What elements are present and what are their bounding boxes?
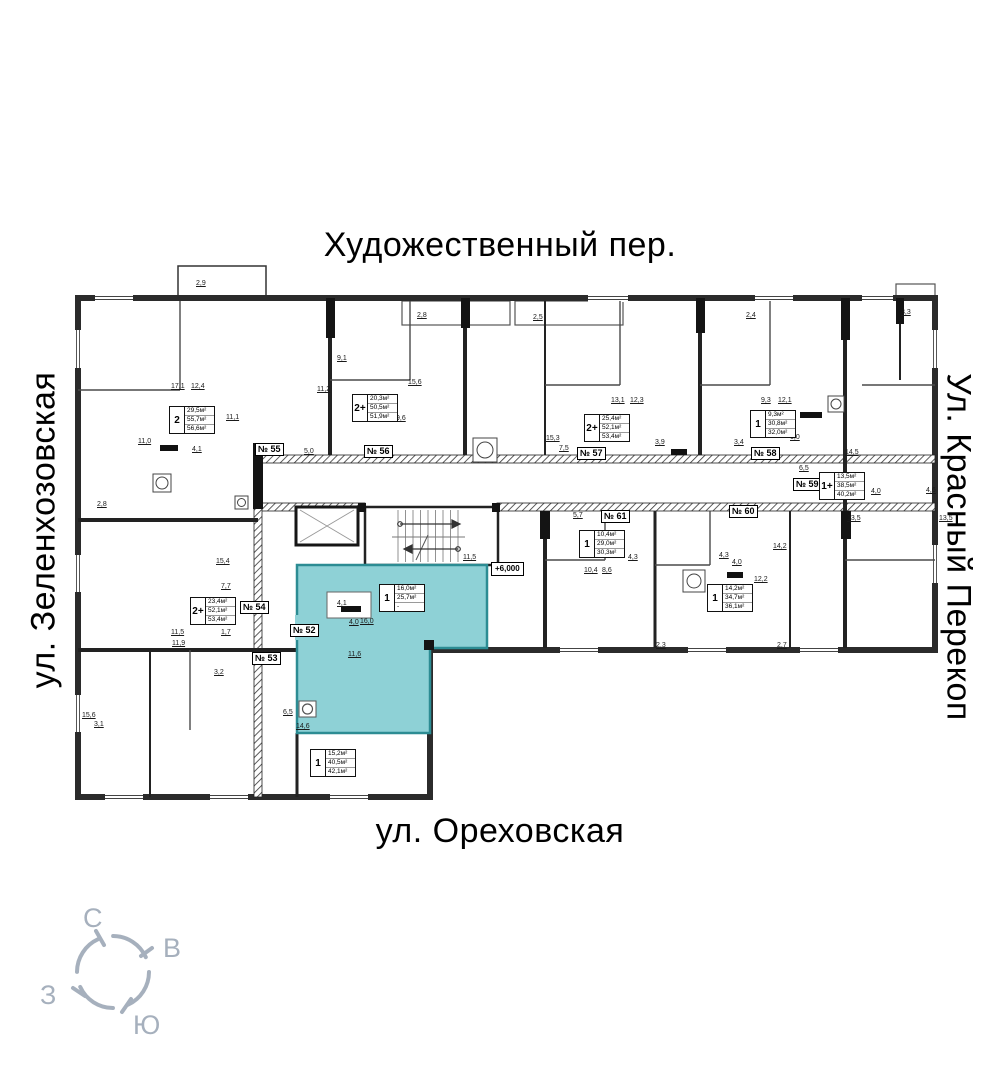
dimension-label: 11,5 — [171, 629, 184, 636]
apartment-area-value: 29,5м² — [185, 407, 214, 416]
apartment-area-value: 50,5м² — [368, 404, 397, 413]
unit-number-tag[interactable]: № 52 — [290, 624, 319, 637]
apartment-type: 2+ — [585, 415, 600, 441]
dimension-label: 17,1 — [171, 383, 185, 390]
dimension-label: 12,3 — [630, 397, 644, 404]
apartment-type: 2+ — [353, 395, 368, 421]
apartment-areas: 10,4м²29,0м²30,3м² — [595, 531, 624, 557]
dimension-label: 12,4 — [191, 383, 205, 390]
dimension-label: 11,1 — [226, 414, 239, 421]
apartment-info-card[interactable]: 2+25,4м²52,1м²53,4м² — [584, 414, 630, 442]
compass-north-label: С — [83, 903, 103, 934]
apartment-type: 1 — [751, 411, 766, 437]
apartment-area-value: 52,1м² — [206, 607, 235, 616]
dimension-label: 2,3 — [656, 642, 666, 649]
apartment-area-value: 56,6м² — [185, 425, 214, 433]
dimension-label: 15,4 — [216, 558, 230, 565]
unit-number-tag[interactable]: № 58 — [751, 447, 780, 460]
apartment-type: 2+ — [191, 598, 206, 624]
dimension-label: 3,4 — [734, 439, 744, 446]
dimension-label: 2,8 — [97, 501, 107, 508]
dimension-label: 8,6 — [602, 567, 612, 574]
dimension-label: 3,3 — [901, 309, 911, 316]
street-label-top: Художественный пер. — [0, 226, 1000, 265]
dimension-label: 12,2 — [754, 576, 768, 583]
dimension-label: 5,7 — [573, 512, 583, 519]
apartment-info-card[interactable]: 114,2м²34,7м²36,1м² — [707, 584, 753, 612]
apartment-area-value: 29,0м² — [595, 540, 624, 549]
dimension-label: 11,2 — [317, 386, 330, 393]
building-footprint — [78, 298, 935, 797]
elevation-mark: +6,000 — [491, 562, 524, 576]
dimension-label: 2,4 — [746, 312, 756, 319]
dimension-label: 15,6 — [82, 712, 96, 719]
apartment-areas: 9,3м²30,8м²32,0м² — [766, 411, 795, 437]
apartment-area-value: 34,7м² — [723, 594, 752, 603]
dimension-label: 6,5 — [799, 465, 809, 472]
compass-west-label: З — [40, 980, 56, 1011]
apartment-area-value: 42,1м² — [326, 768, 355, 776]
apartment-areas: 20,3м²50,5м²51,9м² — [368, 395, 397, 421]
dimension-label: 9,1 — [337, 355, 347, 362]
dimension-label: 7,7 — [221, 583, 231, 590]
unit-number-tag[interactable]: № 57 — [577, 447, 606, 460]
apartment-area-value: 9,3м² — [766, 411, 795, 420]
dimension-label: 2,5 — [533, 314, 543, 321]
dimension-label: 5,0 — [304, 448, 314, 455]
apartment-areas: 29,5м²55,7м²56,6м² — [185, 407, 214, 433]
floorplan-drawing — [0, 0, 1000, 1068]
apartment-type: 2 — [170, 407, 185, 433]
dimension-label: 2,8 — [417, 312, 427, 319]
dimension-label: 7,5 — [559, 445, 569, 452]
dimension-label: 14,5 — [845, 449, 859, 456]
elevator-shaft — [296, 507, 358, 545]
dimension-label: 13,5 — [847, 515, 861, 522]
apartment-area-value: 53,4м² — [600, 433, 629, 441]
apartment-area-value: 32,0м² — [766, 429, 795, 437]
apartment-info-card[interactable]: 110,4м²29,0м²30,3м² — [579, 530, 625, 558]
apartment-area-value: 14,2м² — [723, 585, 752, 594]
dimension-label: 1,7 — [221, 629, 231, 636]
apartment-type: 1 — [311, 750, 326, 776]
apartment-area-value: 30,3м² — [595, 549, 624, 557]
apartment-area-value: 53,4м² — [206, 616, 235, 624]
dimension-label: 13,1 — [611, 397, 625, 404]
apartment-area-value: 20,3м² — [368, 395, 397, 404]
dimension-label: 4,3 — [719, 552, 729, 559]
dimension-label: 9,3 — [761, 397, 771, 404]
dimension-label: 15,3 — [546, 435, 560, 442]
dimension-label: 14,6 — [296, 723, 310, 730]
apartment-area-value: 40,5м² — [326, 759, 355, 768]
apartment-area-value: 15,2м² — [326, 750, 355, 759]
dimension-label: 11,5 — [463, 554, 476, 561]
apartment-type: 1 — [380, 585, 395, 611]
apartment-info-card[interactable]: 115,2м²40,5м²42,1м² — [310, 749, 356, 777]
dimension-label: 6,5 — [283, 709, 293, 716]
apartment-areas: 15,2м²40,5м²42,1м² — [326, 750, 355, 776]
apartment-area-value: 30,8м² — [766, 420, 795, 429]
apartment-area-value: 25,7м² — [395, 594, 424, 603]
apartment-info-card[interactable]: 229,5м²55,7м²56,6м² — [169, 406, 215, 434]
floorplan-page: { "streets": { "top": "Художественный пе… — [0, 0, 1000, 1068]
unit-number-tag[interactable]: № 61 — [601, 510, 630, 523]
apartment-areas: 14,2м²34,7м²36,1м² — [723, 585, 752, 611]
compass-south-label: Ю — [133, 1010, 160, 1041]
unit-number-tag[interactable]: № 59 — [793, 478, 822, 491]
apartment-type: 1+ — [820, 473, 835, 499]
apartment-areas: 13,5м²38,5м²40,2м² — [835, 473, 864, 499]
unit-number-tag[interactable]: № 53 — [252, 652, 281, 665]
apartment-area-value: 52,1м² — [600, 424, 629, 433]
apartment-area-value: 51,9м² — [368, 413, 397, 421]
apartment-areas: 16,0м²25,7м²- — [395, 585, 424, 611]
dimension-label: 4,3 — [628, 554, 638, 561]
compass-icon — [73, 931, 152, 1012]
apartment-info-card-highlighted[interactable]: 116,0м²25,7м²- — [379, 584, 425, 612]
apartment-type: 1 — [708, 585, 723, 611]
unit-number-tag[interactable]: № 55 — [255, 443, 284, 456]
apartment-area-value: 40,2м² — [835, 491, 864, 499]
dimension-label: 3,2 — [214, 669, 224, 676]
washing-machine-icon — [299, 701, 316, 717]
apartment-areas: 23,4м²52,1м²53,4м² — [206, 598, 235, 624]
unit-number-tag[interactable]: № 56 — [364, 445, 393, 458]
dimension-label: 10,4 — [584, 567, 598, 574]
dimension-label: 2,9 — [196, 280, 206, 287]
dimension-label: 3,1 — [94, 721, 104, 728]
apartment-info-card[interactable]: 2+23,4м²52,1м²53,4м² — [190, 597, 236, 625]
street-label-bottom: ул. Ореховская — [0, 812, 1000, 851]
apartment-area-value: 13,5м² — [835, 473, 864, 482]
dimension-label: 13,5 — [939, 515, 953, 522]
apartment-info-card[interactable]: 19,3м²30,8м²32,0м² — [750, 410, 796, 438]
apartment-area-value: - — [395, 603, 424, 611]
apartment-area-value: 25,4м² — [600, 415, 629, 424]
dimension-label: 14,2 — [773, 543, 787, 550]
dimension-label: 4,0 — [871, 488, 881, 495]
apartment-type: 1 — [580, 531, 595, 557]
apartment-info-card[interactable]: 1+13,5м²38,5м²40,2м² — [819, 472, 865, 500]
apartment-area-value: 23,4м² — [206, 598, 235, 607]
apartment-area-value: 38,5м² — [835, 482, 864, 491]
dimension-label: 12,1 — [778, 397, 792, 404]
dimension-label: 11,6 — [348, 651, 361, 658]
dimension-label: 3,9 — [655, 439, 665, 446]
dimension-label: 16,0 — [360, 618, 374, 625]
apartment-area-value: 16,0м² — [395, 585, 424, 594]
street-label-left: ул. Зеленхозовская — [25, 372, 64, 689]
dimension-label: 4,1 — [192, 446, 202, 453]
dimension-label: 4,0 — [349, 619, 359, 626]
bathroom — [327, 592, 371, 618]
compass-east-label: В — [163, 933, 181, 964]
dimension-label: 4,0 — [732, 559, 742, 566]
dimension-label: 15,6 — [408, 379, 422, 386]
stairwell — [365, 507, 498, 565]
apartment-areas: 25,4м²52,1м²53,4м² — [600, 415, 629, 441]
apartment-info-card[interactable]: 2+20,3м²50,5м²51,9м² — [352, 394, 398, 422]
unit-number-tag[interactable]: № 54 — [240, 601, 269, 614]
dimension-label: 11,9 — [172, 640, 185, 647]
dimension-label: 2,7 — [777, 642, 787, 649]
dimension-label: 4,6 — [926, 487, 936, 494]
dimension-label: 11,0 — [138, 438, 151, 445]
apartment-area-value: 10,4м² — [595, 531, 624, 540]
unit-number-tag[interactable]: № 60 — [729, 505, 758, 518]
dimension-label: 4,1 — [337, 600, 347, 607]
street-label-right: Ул. Красный Перекоп — [939, 373, 978, 721]
apartment-area-value: 55,7м² — [185, 416, 214, 425]
apartment-area-value: 36,1м² — [723, 603, 752, 611]
